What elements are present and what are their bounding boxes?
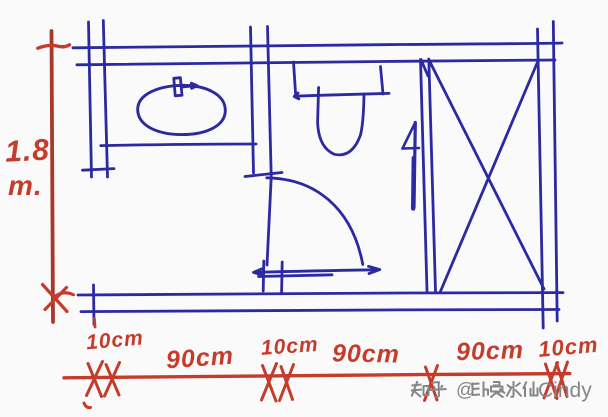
svg-text:10cm: 10cm (85, 326, 145, 354)
svg-text:1.8: 1.8 (4, 133, 50, 168)
svg-text:m.: m. (8, 170, 43, 201)
svg-text:90cm: 90cm (456, 336, 525, 366)
svg-text:90cm: 90cm (332, 339, 400, 368)
svg-text:10cm: 10cm (260, 333, 319, 360)
svg-text:Cindy: Cindy (538, 379, 592, 402)
svg-text:90cm: 90cm (165, 342, 235, 375)
svg-text:10cm: 10cm (537, 332, 599, 362)
svg-text:@: @ (456, 380, 475, 401)
